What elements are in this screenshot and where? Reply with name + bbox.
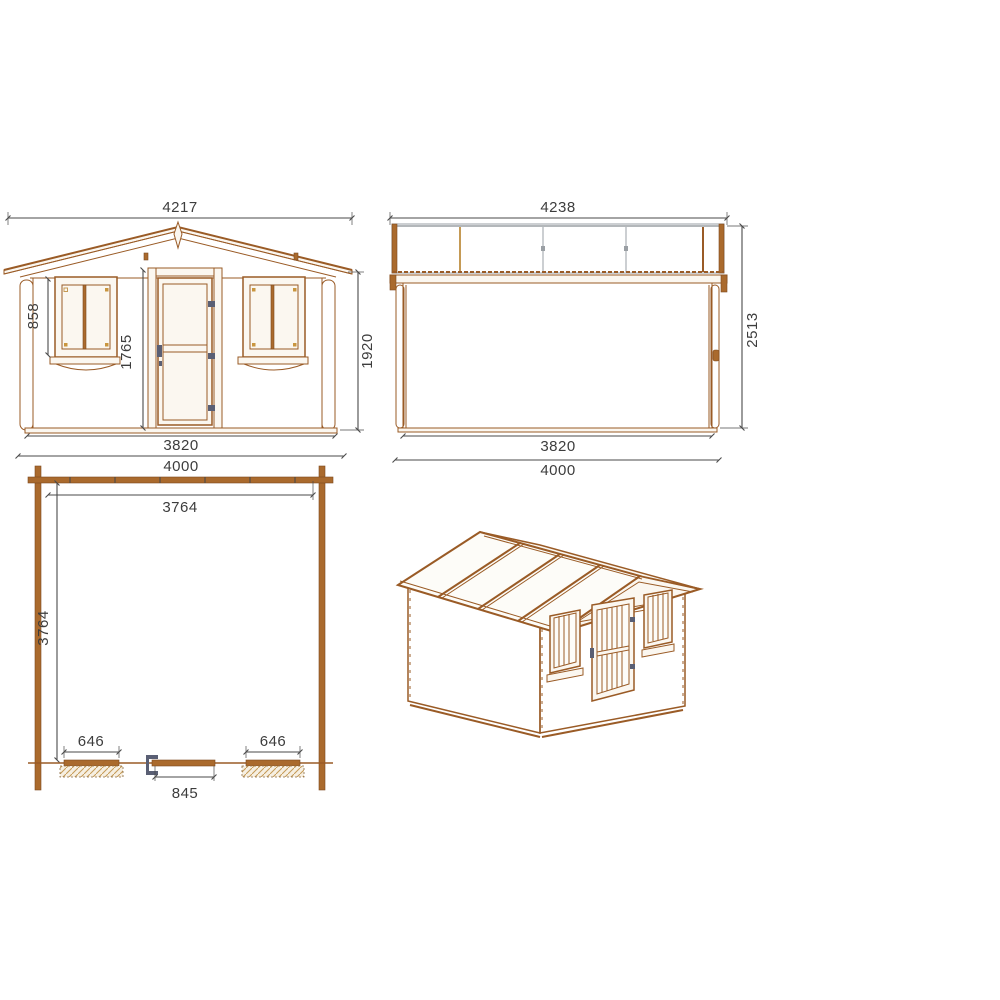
dim-text-646-right: 646 — [260, 733, 287, 750]
door-hinge-middle — [208, 353, 215, 359]
dim-plan-window-right: 646 — [246, 733, 300, 758]
side-roof — [390, 224, 727, 292]
dim-text-plan-depth-3764: 3764 — [35, 610, 52, 645]
front-door — [148, 268, 222, 430]
dim-front-eave-height: 1920 — [340, 272, 376, 430]
dim-text-2513: 2513 — [744, 312, 761, 347]
dim-text-858: 858 — [25, 303, 42, 330]
dim-front-overall-width: 4217 — [8, 199, 352, 225]
front-window-right — [238, 277, 308, 370]
plan-door — [146, 755, 215, 775]
dim-plan-inner-width: 3764 — [48, 481, 313, 516]
drawing-svg: 4217 — [0, 0, 1000, 1000]
dim-text-1920: 1920 — [359, 333, 376, 368]
technical-drawing-sheet: 4217 — [0, 0, 1000, 1000]
dim-front-window-height: 858 — [25, 279, 48, 355]
side-door-knob — [713, 350, 719, 361]
dim-text-front-4000: 4000 — [163, 458, 198, 475]
persp-window-right — [642, 590, 674, 657]
plan-window-right — [242, 760, 304, 777]
dim-front-door-height: 1765 — [118, 270, 143, 428]
dim-side-overall-width: 4238 — [390, 199, 727, 225]
dim-text-4238: 4238 — [540, 199, 575, 216]
front-base-beam — [25, 428, 337, 433]
floor-plan-view: 3764 3764 646 — [28, 466, 333, 802]
roof-finial — [174, 222, 182, 248]
side-elevation-view: 4238 — [390, 199, 761, 479]
dim-text-front-3820: 3820 — [163, 437, 198, 454]
side-wall-logs — [403, 283, 712, 428]
front-window-left — [50, 277, 120, 370]
door-hinge-top — [208, 301, 215, 307]
persp-window-left — [547, 610, 583, 682]
dim-text-4217: 4217 — [162, 199, 197, 216]
dim-plan-door-width: 845 — [155, 766, 214, 802]
dim-side-base-width: 4000 — [395, 460, 719, 479]
dim-text-side-4000: 4000 — [540, 462, 575, 479]
plan-door-hinge — [146, 755, 149, 775]
dim-front-base-width: 4000 — [18, 456, 344, 475]
dim-text-plan-width-3764: 3764 — [162, 499, 197, 516]
window-box-right — [238, 357, 308, 364]
door-handle — [157, 345, 162, 357]
corner-log-ends-right — [322, 280, 335, 430]
persp-door — [590, 598, 635, 701]
dim-side-overall-height: 2513 — [720, 226, 761, 428]
persp-base-left — [410, 705, 540, 737]
persp-door-handle — [590, 648, 594, 658]
dim-text-646-left: 646 — [78, 733, 105, 750]
dim-text-1765: 1765 — [118, 334, 135, 369]
plan-wall-top — [28, 477, 333, 483]
dim-side-wall-width: 3820 — [403, 436, 712, 455]
plan-wall-right — [319, 466, 325, 790]
dim-front-wall-width: 3820 — [27, 436, 335, 454]
window-box-left — [50, 357, 120, 364]
persp-base-front — [542, 710, 683, 737]
front-elevation-view: 4217 — [4, 199, 376, 475]
dim-text-845: 845 — [172, 785, 199, 802]
corner-log-ends-left — [20, 280, 33, 430]
plan-window-left — [60, 760, 123, 777]
side-fascia — [390, 275, 727, 283]
door-keyhole — [159, 361, 162, 366]
door-hinge-bottom — [208, 405, 215, 411]
gable-bracket-right — [294, 253, 298, 260]
side-base-beam — [398, 428, 717, 432]
perspective-view — [398, 532, 700, 737]
dim-plan-window-left: 646 — [64, 733, 119, 758]
gable-bracket-left — [144, 253, 148, 260]
dim-text-side-3820: 3820 — [540, 438, 575, 455]
